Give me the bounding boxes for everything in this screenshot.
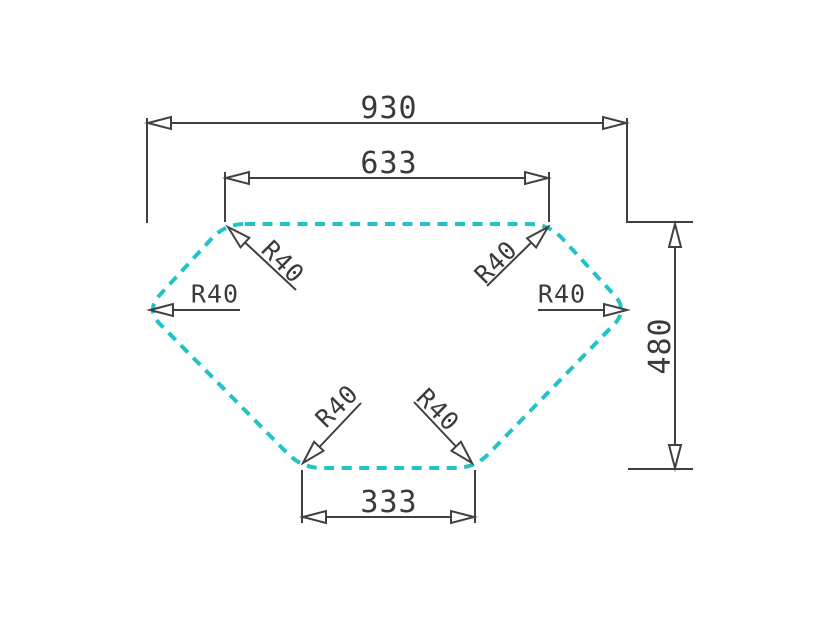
label-overall-height: 480 (643, 317, 678, 374)
label-radius-left: R40 (191, 280, 239, 309)
dim-480-arrowhead-top (669, 224, 681, 247)
label-bottom-edge-width: 333 (360, 485, 417, 520)
dim-633-arrowhead-left (226, 172, 249, 184)
dim-930-arrowhead-left (148, 117, 171, 129)
dim-633-arrowhead-right (525, 172, 548, 184)
dimension-drawing: 930 633 333 480 R40 R40 R40 R40 R40 R40 (0, 0, 826, 620)
leader-r40-right-arrowhead (604, 304, 627, 316)
label-radius-bottom-left: R40 (310, 379, 365, 434)
dim-480-arrowhead-bottom (669, 445, 681, 468)
dim-333-arrowhead-left (303, 511, 326, 523)
label-radius-top-left: R40 (256, 235, 311, 290)
dim-333-arrowhead-right (451, 511, 474, 523)
label-overall-width: 930 (360, 91, 417, 126)
label-radius-top-right: R40 (469, 235, 524, 290)
dim-930-arrowhead-right (603, 117, 626, 129)
label-radius-bottom-right: R40 (411, 383, 466, 438)
drawing-canvas: 930 633 333 480 R40 R40 R40 R40 R40 R40 (0, 0, 826, 620)
dimension-graphics (147, 117, 693, 523)
label-top-edge-width: 633 (360, 146, 417, 181)
shape-outline-dashed (153, 224, 621, 468)
dim-930-ext-right (627, 118, 693, 222)
label-radius-right: R40 (538, 280, 586, 309)
